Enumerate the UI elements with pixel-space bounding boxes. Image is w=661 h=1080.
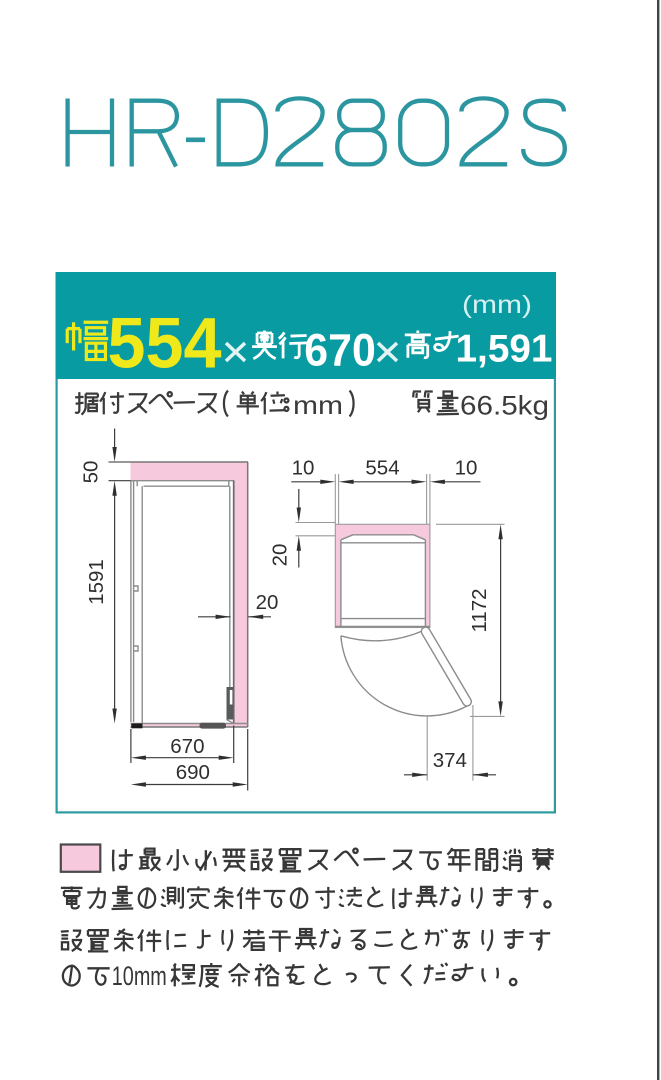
- svg-text:50: 50: [80, 461, 103, 484]
- svg-text:10: 10: [292, 457, 315, 480]
- svg-text:10: 10: [455, 457, 478, 480]
- svg-text:10mm: 10mm: [112, 961, 167, 991]
- svg-text:670: 670: [304, 325, 376, 376]
- svg-text:1,591: 1,591: [456, 328, 553, 371]
- svg-text:554: 554: [365, 457, 399, 480]
- svg-text:20: 20: [269, 544, 292, 567]
- svg-text:mm: mm: [293, 390, 343, 420]
- svg-text:(mm): (mm): [462, 291, 532, 319]
- svg-text:20: 20: [256, 591, 279, 614]
- svg-text:1591: 1591: [85, 559, 108, 605]
- svg-text:690: 690: [176, 761, 210, 784]
- svg-text:1172: 1172: [468, 588, 491, 632]
- svg-text:554: 554: [108, 305, 222, 384]
- svg-text:66.5kg: 66.5kg: [460, 391, 549, 421]
- svg-text:670: 670: [170, 735, 204, 758]
- svg-text:374: 374: [433, 749, 467, 772]
